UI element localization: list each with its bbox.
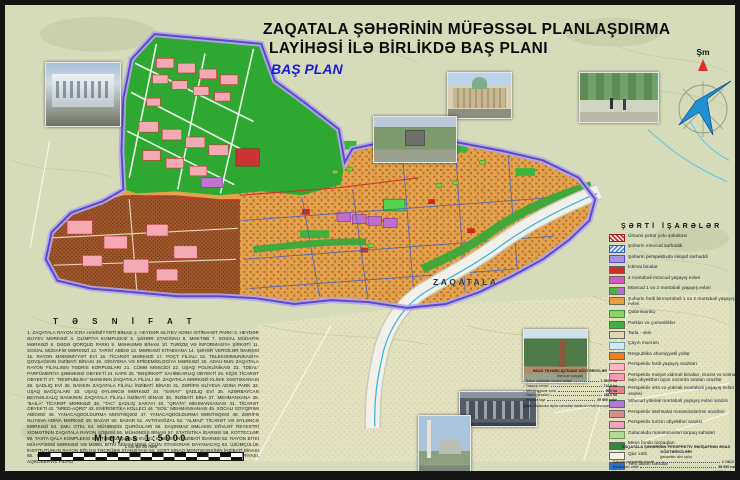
stats-row: – Şəhər ərazisinin ümumi sahəsi 1 360,0 …	[523, 379, 617, 383]
stats-subheading: (mövcud vəziyyət)	[523, 374, 617, 378]
magenta-block-north	[201, 178, 222, 188]
photo-columns-shape	[466, 401, 530, 420]
legend-item: İctimai binalar	[609, 265, 740, 273]
photo-monument-shape	[405, 130, 425, 146]
stats-row-value: 29 800 nəfər	[597, 398, 617, 402]
legend-item-label: Perspektiv məişət xidməti binaları, tica…	[628, 373, 740, 384]
stats-row-label: Perspektiv əhali	[613, 465, 638, 469]
map-city-label: ZAQATALA	[433, 277, 523, 287]
stats-row-value: 96,0 ha	[606, 389, 618, 393]
stats-row-label: – Əhalinin sayı	[523, 398, 545, 402]
legend-item-label: Mövcud yüksək mərtəbəli yaşayış evləri ə…	[628, 399, 728, 405]
stats-block-existing: ƏSAS TEXNİKİ-İQTİSADİ GÖSTƏRİCİLƏR (mövc…	[523, 369, 617, 408]
legend-item: Perspektiv turizm obyektləri ərazisi	[609, 420, 740, 428]
compass-icon	[669, 57, 737, 147]
classification-heading: T Ə S N İ F A T	[53, 317, 259, 326]
legend-color-chip	[609, 473, 625, 480]
stats-row-label: Fərdi yaşayış evləri	[613, 474, 644, 478]
photo-heydar-aliyev-center	[447, 72, 512, 119]
legend-item-label: Şəhərin fərdi birmərtəbəli 1 və 2 mərtəb…	[628, 297, 740, 308]
legend-item: Şəhərin mövcud sərhəddi	[609, 244, 740, 252]
legend-item: Perspektiv orta və yüksək mərtəbəli yaşa…	[609, 386, 740, 397]
legend-item-label: Kanalizasiya xətti	[628, 473, 665, 479]
legend-item-label: Respublika əhəmiyyətli yollar	[628, 352, 690, 358]
legend-color-chip	[609, 342, 625, 350]
stats-row: – Yaşıllıq əraziləri 188,0 ha	[523, 393, 617, 397]
north-arrow-icon	[698, 59, 708, 71]
legend-color-chip	[609, 245, 625, 253]
compass-rose: Şm	[669, 47, 737, 147]
legend-item-label: Perspektiv fərdi yaşayış əraziləri	[628, 362, 697, 368]
scale-block: Miqyas 1:5000 1 sm-də 50 metr	[29, 433, 253, 461]
stats-row-leader	[638, 472, 713, 473]
legend-item: Perspektiv məişət xidməti binaları, tica…	[609, 373, 740, 384]
legend-color-chip	[609, 266, 625, 274]
legend-color-chip	[609, 352, 625, 360]
stats-row-leader	[551, 386, 602, 387]
stats-row: Perspektiv əhali 38 000 nəfər	[613, 465, 739, 469]
photo-window-stripes	[56, 81, 109, 99]
stats-row-label: – Yaşıllıq əraziləri	[523, 393, 549, 397]
legend-item-label: 4 mərtəbəli mövcud yaşayış evləri	[628, 276, 700, 282]
legend-color-chip	[609, 321, 625, 329]
photo-dome-shape	[472, 77, 487, 90]
stats-row-leader	[558, 391, 604, 392]
stats-row-value: 1 742,0 ha	[722, 460, 739, 464]
legend-item: Kanalizasiya xətti	[609, 473, 740, 480]
stats-row-leader	[551, 395, 601, 396]
legend-item: Perspektiv istehsalat müəssisələrinin ər…	[609, 410, 740, 418]
stats-row-value: 38 000 nəfər	[718, 465, 739, 469]
scale-bar-bottom-strip	[39, 457, 243, 461]
legend-item: Çayın məcrası	[609, 341, 740, 349]
legend-color-chip	[609, 297, 625, 305]
photo-facade-shape	[453, 88, 506, 108]
legend-item: Qəbiristanlıq	[609, 310, 740, 318]
legend-item: Şəhərin perspektivdə inkişaf sərhəddi	[609, 255, 740, 263]
public-block-red	[236, 149, 259, 166]
north-label: Şm	[669, 47, 737, 57]
stats-note: Qeyd: Göstəricilər layihə sərhədləri dax…	[523, 404, 617, 408]
stats-row-value: 742,0 ha	[604, 384, 617, 388]
legend-item-label: Çayın məcrası	[628, 341, 659, 347]
legend-item: Tarla - əkin	[609, 331, 740, 339]
stats-row-leader	[640, 467, 716, 468]
stats-rows: Şəhərin perspektiv ərazisi 1 742,0 ha Pe…	[613, 460, 739, 480]
photo-memorial-monument	[373, 116, 457, 163]
legend-color-chip	[609, 276, 625, 284]
legend-item: Respublika əhəmiyyətli yollar	[609, 352, 740, 360]
page-title-line1: ZAQATALA ŞƏHƏRİNİN MÜFƏSSƏL PLANLAŞDIRMA	[263, 21, 683, 39]
stats-row-label: Şəhərin perspektiv ərazisi	[613, 460, 654, 464]
photo-park-promenade	[579, 72, 659, 123]
legend-item-label: İctimai binalar	[628, 265, 658, 271]
stats-row-value: 1 360,0 ha	[601, 379, 617, 383]
legend-item-label: Perspektiv orta və yüksək mərtəbəli yaşa…	[628, 386, 740, 397]
master-plan-sheet: ZAQATALA ŞƏHƏRİNİN MÜFƏSSƏL PLANLAŞDIRMA…	[0, 0, 740, 480]
stats-subheading: (perspektiv dövr üçün)	[613, 455, 739, 459]
legend-color-chip	[609, 410, 625, 418]
stats-row: – Əhalinin sayı 29 800 nəfər	[523, 398, 617, 402]
legend-item-label: Şəhərin perspektivdə inkişaf sərhəddi	[628, 255, 708, 261]
legend-item: Mövcud 1 və 2 mərtəbəli yaşayış evləri	[609, 286, 740, 294]
stats-row-leader	[646, 476, 719, 477]
stats-row-label: Yaşayış fondu	[613, 470, 636, 474]
stats-row-label: – Yaşayış zonası	[523, 384, 549, 388]
photo-trees-shape	[580, 73, 658, 100]
legend-item-label: Ümumi şəhər yolu şəbəkəsi	[628, 234, 687, 240]
stats-note-label: Qeyd:	[523, 404, 532, 408]
stats-row-label: – İctimai-işgüzar zona	[523, 389, 556, 393]
legend-item-label: Perspektiv turizm obyektləri ərazisi	[628, 420, 702, 426]
stats-row-value: 1 026,0 min m²	[714, 470, 739, 474]
stats-row-leader	[547, 400, 595, 401]
legend-item-label: Mövcud 1 və 2 mərtəbəli yaşayış evləri	[628, 286, 711, 292]
stats-row: Şəhərin perspektiv ərazisi 1 742,0 ha	[613, 460, 739, 464]
photo-mosque-dome-shape	[439, 439, 460, 454]
page-subtitle: BAŞ PLAN	[271, 61, 683, 77]
page-title-line2: LAYİHƏSİ İLƏ BİRLİKDƏ BAŞ PLANI	[269, 40, 683, 58]
legend-item: 4 mərtəbəli mövcud yaşayış evləri	[609, 276, 740, 284]
scale-title: Miqyas 1:5000	[29, 433, 253, 443]
legend-item: Parklar və çəmənliklər	[609, 321, 740, 329]
scale-bar	[38, 452, 244, 461]
legend-item: Ümumi şəhər yolu şəbəkəsi	[609, 234, 740, 242]
photo-administrative-building	[45, 62, 121, 127]
photo-tower-shape	[559, 339, 567, 367]
stats-rows: – Şəhər ərazisinin ümumi sahəsi 1 360,0 …	[523, 379, 617, 402]
photo-minaret-shape	[427, 420, 431, 458]
stats-row: Yaşayış fondu 1 026,0 min m²	[613, 470, 739, 474]
stats-row: Fərdi yaşayış evləri 7 430 ədəd	[613, 474, 739, 478]
legend-item-label: Perspektiv istehsalat müəssisələrinin ər…	[628, 410, 725, 416]
legend-panel: ŞƏRTİ İŞARƏLƏR Ümumi şəhər yolu şəbəkəsi…	[609, 223, 740, 480]
legend-item-label: Qəbiristanlıq	[628, 310, 655, 316]
legend-color-chip	[609, 421, 625, 429]
stats-row-value: 7 430 ədəd	[721, 474, 739, 478]
legend-item-label: Gələcəkdə mənimsənilən torpaq sahələri	[628, 431, 715, 437]
stats-note-text: Göstəricilər layihə sərhədləri daxilində…	[533, 404, 610, 408]
stats-row: – Yaşayış zonası 742,0 ha	[523, 384, 617, 388]
legend-color-chip	[609, 431, 625, 439]
legend-item: Gələcəkdə mənimsənilən torpaq sahələri	[609, 431, 740, 439]
stats-block-perspective: ZAQATALA ŞƏHƏRİNİN PERSPEKTİV İNKİŞAFINI…	[613, 445, 739, 480]
stats-row-value: 188,0 ha	[604, 393, 617, 397]
legend-color-chip	[609, 287, 625, 295]
stats-row-leader	[574, 381, 599, 382]
legend-color-chip	[609, 255, 625, 263]
legend-color-chip	[609, 331, 625, 339]
legend-item-label: Parklar və çəmənliklər	[628, 321, 675, 327]
legend-item-label: Şəhərin mövcud sərhəddi	[628, 244, 682, 250]
photo-mosque-minaret	[418, 415, 471, 475]
legend-item: Mövcud yüksək mərtəbəli yaşayış evləri ə…	[609, 399, 740, 407]
stats-row-leader	[656, 462, 720, 463]
stats-heading: ZAQATALA ŞƏHƏRİNİN PERSPEKTİV İNKİŞAFINI…	[613, 445, 739, 455]
stats-row-label: – Şəhər ərazisinin ümumi sahəsi	[523, 379, 572, 383]
stats-heading: ƏSAS TEXNİKİ-İQTİSADİ GÖSTƏRİCİLƏR	[523, 369, 617, 374]
scale-subtitle: 1 sm-də 50 metr	[29, 444, 253, 449]
legend-title: ŞƏRTİ İŞARƏLƏR	[621, 223, 740, 230]
legend-item: Şəhərin fərdi birmərtəbəli 1 və 2 mərtəb…	[609, 297, 740, 308]
legend-color-chip	[609, 234, 625, 242]
legend-color-chip	[609, 310, 625, 318]
legend-item-label: Tarla - əkin	[628, 331, 651, 337]
legend-item: Perspektiv fərdi yaşayış əraziləri	[609, 362, 740, 370]
title-block: ZAQATALA ŞƏHƏRİNİN MÜFƏSSƏL PLANLAŞDIRMA…	[263, 21, 683, 77]
stats-row: – İctimai-işgüzar zona 96,0 ha	[523, 389, 617, 393]
photo-people-shapes	[610, 98, 613, 109]
